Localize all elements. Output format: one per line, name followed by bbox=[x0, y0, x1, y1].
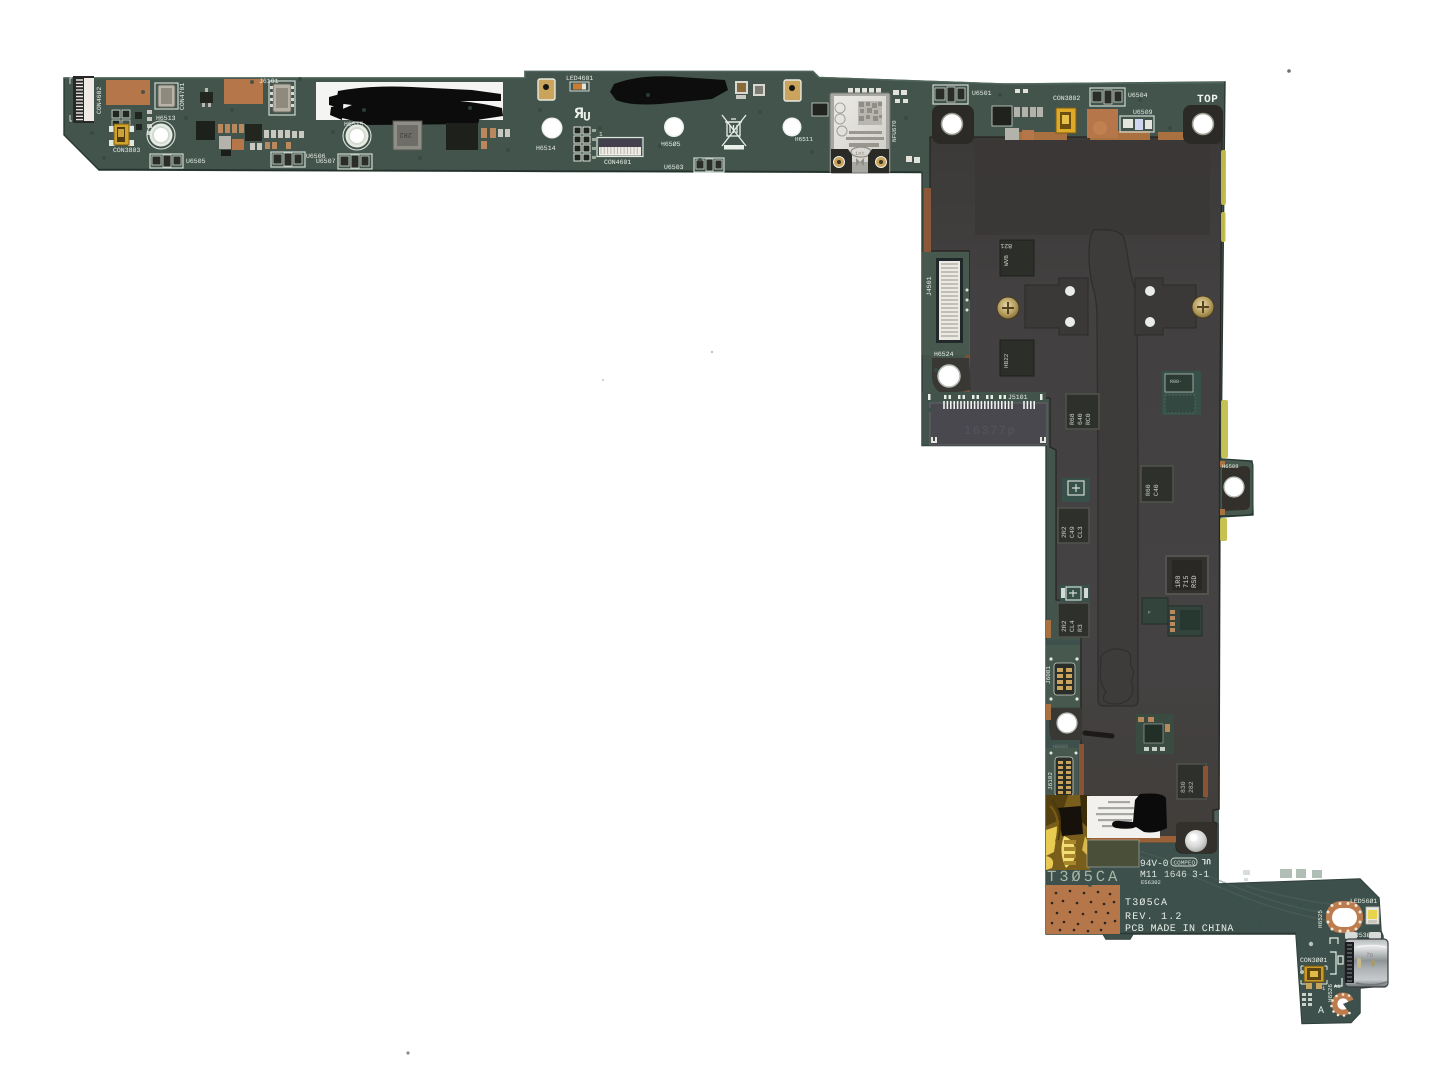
svg-text:CON3803: CON3803 bbox=[113, 147, 140, 154]
svg-text:U6501: U6501 bbox=[972, 90, 992, 97]
svg-text:B21: B21 bbox=[1000, 242, 1012, 249]
svg-text:H6511: H6511 bbox=[795, 136, 813, 143]
svg-text:HB22: HB22 bbox=[1003, 353, 1010, 368]
svg-text:CON3802: CON3802 bbox=[1053, 95, 1080, 102]
svg-text:A: A bbox=[1318, 1006, 1324, 1017]
svg-text:2R2: 2R2 bbox=[399, 130, 412, 138]
svg-text:H6524: H6524 bbox=[934, 351, 954, 358]
svg-text:CON4601: CON4601 bbox=[604, 159, 631, 166]
svg-text:H6515: H6515 bbox=[344, 121, 364, 128]
svg-text:H6513: H6513 bbox=[156, 115, 176, 122]
svg-text:H6508: H6508 bbox=[1222, 463, 1239, 470]
svg-text:TOP: TOP bbox=[1197, 94, 1218, 106]
svg-text:RSD: RSD bbox=[1191, 575, 1199, 588]
svg-text:1: 1 bbox=[599, 131, 603, 138]
svg-text:1646: 1646 bbox=[1164, 869, 1187, 880]
svg-text:830: 830 bbox=[1180, 781, 1187, 793]
svg-text:LED4601: LED4601 bbox=[566, 75, 593, 82]
svg-text:U6505: U6505 bbox=[186, 158, 206, 165]
svg-text:1R0: 1R0 bbox=[1175, 575, 1183, 588]
svg-text:REV. 1.2: REV. 1.2 bbox=[1125, 912, 1183, 923]
svg-text:3-1: 3-1 bbox=[1192, 869, 1209, 880]
svg-text:U6504: U6504 bbox=[1128, 92, 1148, 99]
svg-text:T3Ø5CA: T3Ø5CA bbox=[1047, 868, 1120, 886]
svg-text:PCB MADE IN CHINA: PCB MADE IN CHINA bbox=[1125, 924, 1234, 935]
svg-text:NFU670: NFU670 bbox=[891, 120, 898, 142]
svg-text:282: 282 bbox=[1188, 781, 1195, 793]
svg-text:J4501: J4501 bbox=[926, 276, 933, 296]
svg-text:640: 640 bbox=[1077, 413, 1084, 425]
svg-text:U6503: U6503 bbox=[664, 164, 684, 171]
svg-text:int: int bbox=[855, 150, 865, 157]
svg-text:CON3ØØ1: CON3ØØ1 bbox=[1300, 957, 1327, 964]
svg-text:2R2: 2R2 bbox=[1061, 526, 1068, 538]
svg-text:WVB: WVB bbox=[1003, 255, 1010, 266]
svg-text:A1: A1 bbox=[1334, 983, 1341, 990]
svg-text:16377p: 16377p bbox=[964, 424, 1016, 438]
svg-text:H65Ø5: H65Ø5 bbox=[661, 141, 681, 148]
svg-text:CON4602: CON4602 bbox=[96, 87, 103, 114]
svg-text:CL3: CL3 bbox=[1077, 526, 1084, 538]
svg-text:J6102: J6102 bbox=[1047, 772, 1054, 790]
svg-text:R3: R3 bbox=[1077, 624, 1084, 632]
svg-text:T3Ø5CA: T3Ø5CA bbox=[1125, 898, 1168, 909]
svg-text:H6525: H6525 bbox=[1317, 910, 1324, 928]
svg-text:C49: C49 bbox=[1069, 526, 1076, 538]
svg-text:F: F bbox=[1148, 611, 1151, 616]
svg-text:2R2: 2R2 bbox=[1061, 620, 1068, 632]
svg-text:U6509: U6509 bbox=[1133, 109, 1153, 116]
svg-text:R00-: R00- bbox=[1170, 379, 1182, 385]
svg-text:E56302: E56302 bbox=[1141, 879, 1161, 886]
svg-text:J6001: J6001 bbox=[1045, 666, 1052, 684]
svg-text:RC0: RC0 bbox=[1085, 413, 1092, 425]
svg-text:LED56Ø1: LED56Ø1 bbox=[1350, 898, 1377, 905]
svg-text:H6514: H6514 bbox=[536, 145, 556, 152]
svg-text:COMPEQ: COMPEQ bbox=[1174, 860, 1196, 867]
svg-text:CL4: CL4 bbox=[1069, 620, 1076, 632]
svg-text:R68: R68 bbox=[1069, 413, 1076, 425]
svg-text:U: U bbox=[583, 110, 591, 125]
svg-text:U6507: U6507 bbox=[316, 158, 336, 165]
svg-text:R60: R60 bbox=[1145, 484, 1152, 496]
svg-text:715: 715 bbox=[1183, 575, 1191, 588]
svg-text:J6101: J6101 bbox=[259, 78, 279, 85]
svg-text:UL: UL bbox=[1201, 856, 1211, 865]
svg-text:94V-0: 94V-0 bbox=[1140, 858, 1169, 869]
svg-text:J5101: J5101 bbox=[1008, 394, 1028, 401]
svg-text:C40: C40 bbox=[1153, 484, 1160, 496]
svg-text:CON4701: CON4701 bbox=[179, 83, 186, 110]
